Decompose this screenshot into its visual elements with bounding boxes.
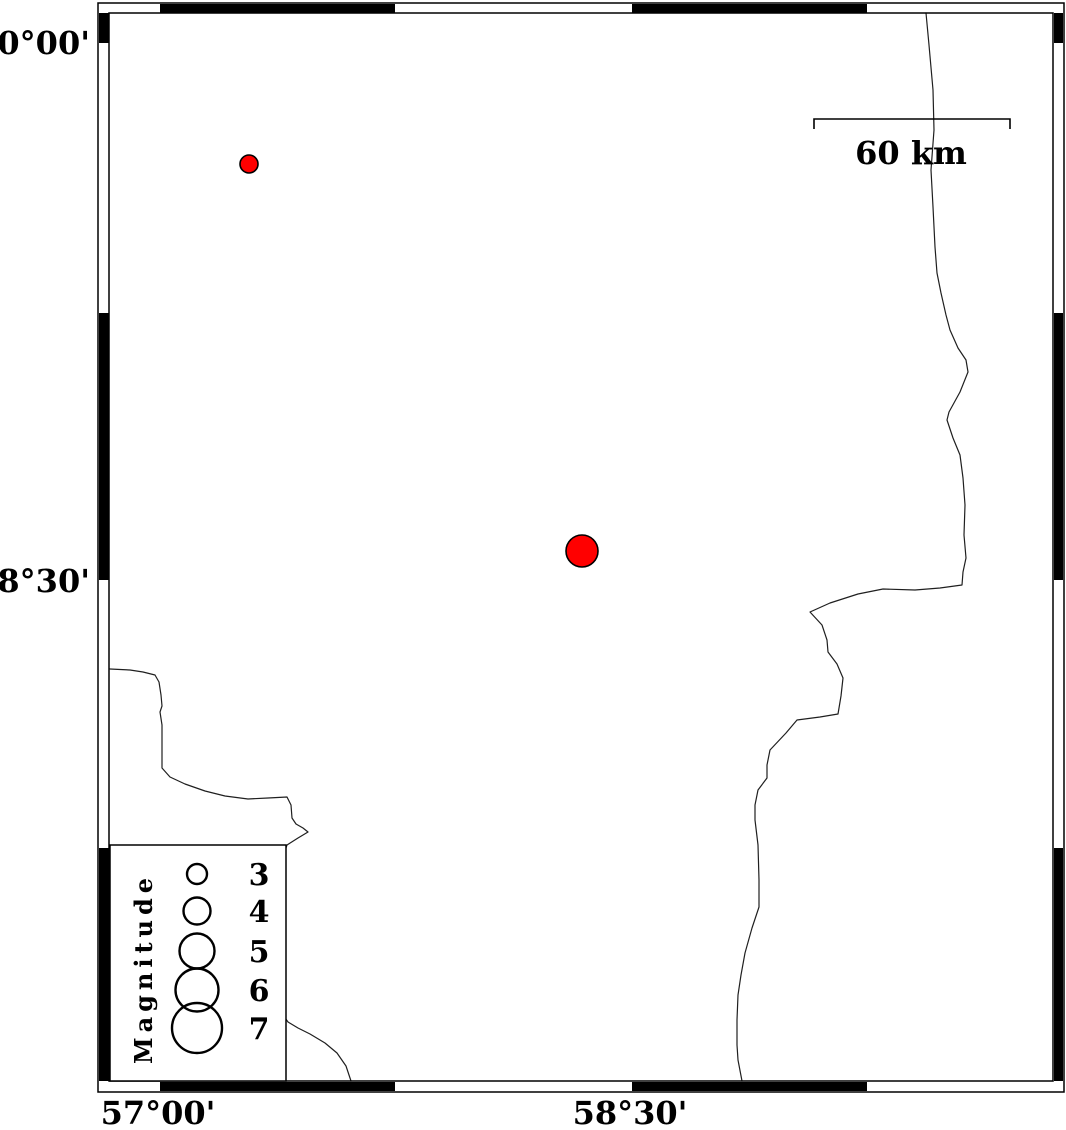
frame-top-black-segment [632,4,867,13]
legend-label-4: 4 [249,895,270,930]
map-canvas: 30°00' 28°30' 57°00' 58°30' 60 km Magnit… [0,0,1066,1130]
lon-label-center: 58°30' [573,1094,688,1130]
frame-left-black-segment [99,13,109,43]
frame-right-black-segment [1054,13,1063,43]
coastline-east-path [737,13,968,1081]
frame-bottom-black-segment [160,1082,395,1091]
frame-right-black-segment [1054,848,1063,1081]
legend-label-3: 3 [249,858,270,893]
lon-label-left: 57°00' [101,1094,216,1130]
legend-label-6: 6 [249,974,270,1009]
earthquake-marker [566,535,598,567]
frame-top-black-segment [160,4,395,13]
lat-label-top: 30°00' [0,24,90,62]
frame-left-black-segment [99,313,109,580]
frame-left-black-segment [99,848,109,1081]
legend-label-7: 7 [249,1012,270,1047]
map-figure: 30°00' 28°30' 57°00' 58°30' 60 km Magnit… [0,0,1066,1130]
scale-bar-label: 60 km [855,134,967,172]
frame-bottom-black-segment [632,1082,867,1091]
legend-title: Magnitude [129,873,158,1064]
lat-label-middle: 28°30' [0,562,90,600]
legend-label-5: 5 [249,935,270,970]
scale-bar-bracket [814,119,1010,129]
earthquake-marker [240,155,258,173]
frame-right-black-segment [1054,313,1063,580]
